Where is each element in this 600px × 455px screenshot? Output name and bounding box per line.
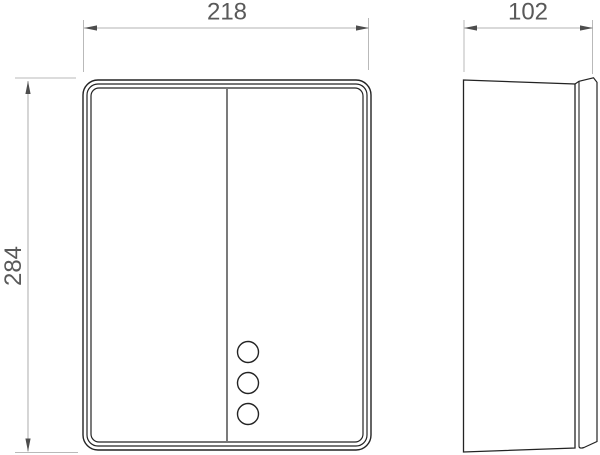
depth-arrow-right: [580, 25, 593, 30]
width-dimension-label: 218: [207, 0, 247, 26]
depth-dimension-label: 102: [508, 0, 548, 26]
height-arrow-bottom: [25, 439, 30, 452]
front-button-circle-2: [238, 373, 259, 394]
front-view: [83, 80, 371, 450]
side-backplate-contour: [575, 78, 597, 448]
front-button-circle-1: [238, 342, 259, 363]
technical-drawing-canvas: 218 284 102: [0, 0, 600, 455]
drawing-svg: 218 284 102: [0, 0, 600, 455]
dimension-height: 284: [0, 78, 78, 453]
width-arrow-left: [84, 25, 97, 30]
height-arrow-top: [25, 81, 30, 94]
depth-arrow-left: [464, 25, 477, 30]
dimension-depth: 102: [464, 0, 593, 74]
front-button-circle-3: [238, 404, 259, 425]
side-view: [464, 78, 598, 452]
side-body-contour: [464, 80, 576, 452]
width-arrow-right: [356, 25, 369, 30]
dimension-width: 218: [84, 0, 370, 72]
height-dimension-label: 284: [0, 246, 27, 286]
